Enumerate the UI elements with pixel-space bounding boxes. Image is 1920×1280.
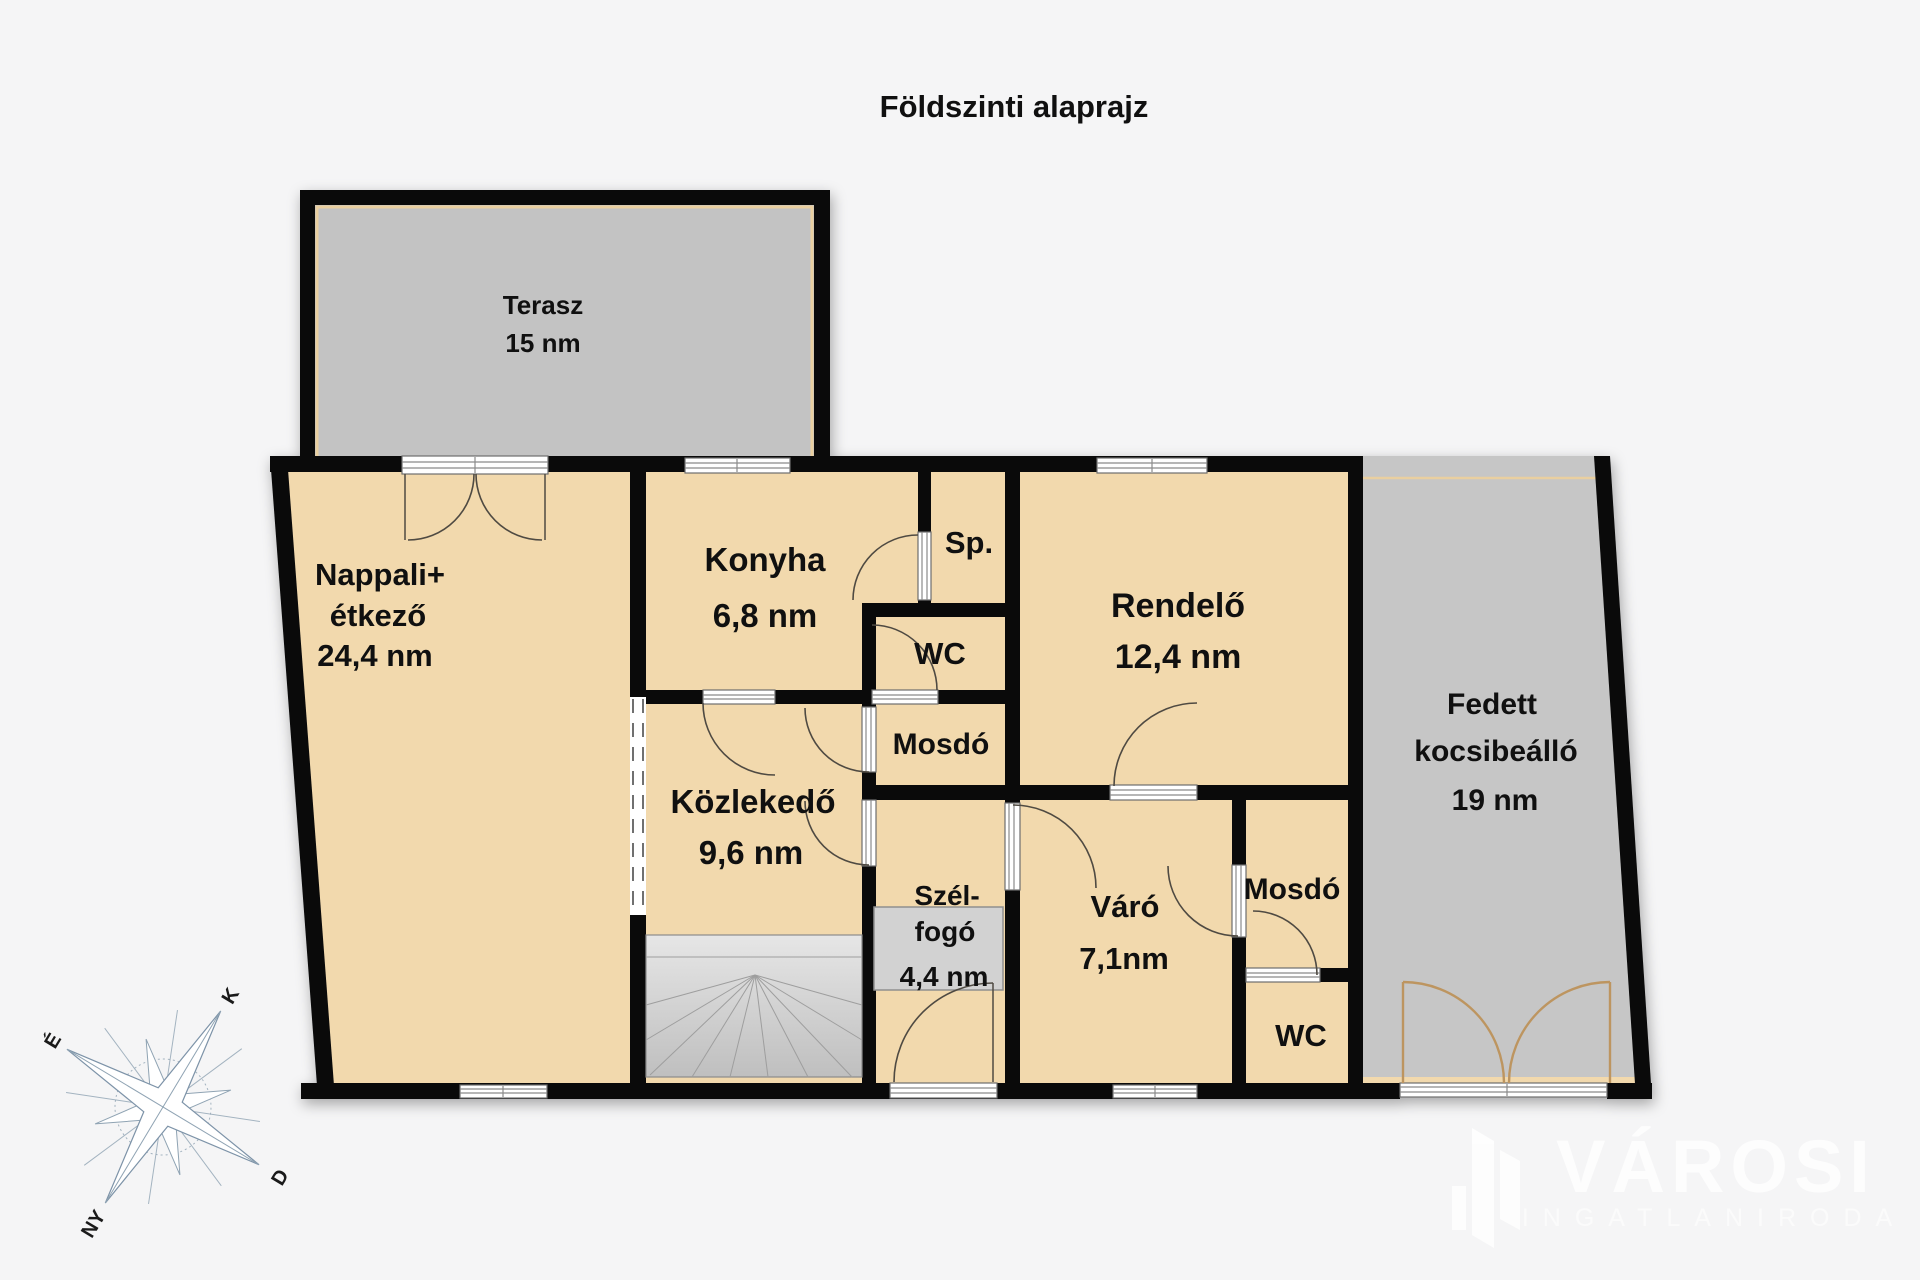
window-frame-nappali	[460, 1085, 547, 1098]
label-kocsibeallo-name1: Fedett	[1447, 688, 1537, 721]
label-rendelo-name: Rendelő	[1111, 587, 1245, 625]
label-terasz-name: Terasz	[503, 290, 583, 320]
open-passage	[630, 697, 646, 915]
label-nappali-area: 24,4 nm	[317, 638, 432, 673]
door-frame-spajz	[918, 532, 931, 600]
window-frame-rendelo	[1097, 458, 1207, 473]
staircase	[646, 935, 862, 1077]
door-frame-konyha	[703, 690, 775, 704]
label-kozlekedo-name: Közlekedő	[670, 783, 835, 820]
floor-plan-canvas: Földszinti alaprajz	[0, 0, 1920, 1280]
compass-label-west: NY	[77, 1206, 111, 1242]
door-frame-carport	[1400, 1083, 1607, 1097]
label-terasz-area: 15 nm	[505, 328, 580, 358]
compass-label-north: É	[40, 1029, 67, 1052]
compass-label-east: K	[218, 984, 245, 1008]
label-konyha-name: Konyha	[704, 541, 826, 578]
label-kocsibeallo-area: 19 nm	[1452, 784, 1539, 817]
label-szelfogo-area: 4,4 nm	[900, 961, 989, 992]
window-frame-konyha	[685, 458, 790, 473]
label-nappali-name1: Nappali+	[315, 557, 445, 592]
label-kozlekedo-area: 9,6 nm	[699, 834, 804, 871]
label-szelfogo-name2: fogó	[915, 916, 976, 947]
label-mosdo-right: Mosdó	[1244, 873, 1341, 906]
watermark-logo-icon	[1452, 1128, 1520, 1248]
door-frame-wc-central	[872, 690, 938, 704]
label-wc-right: WC	[1275, 1018, 1327, 1053]
watermark-subtitle: INGATLANIRODA	[1522, 1204, 1906, 1232]
label-nappali-name2: étkező	[330, 598, 426, 633]
compass-label-south: D	[267, 1166, 293, 1190]
door-frame-wc-right	[1246, 968, 1320, 982]
label-mosdo-central: Mosdó	[893, 728, 990, 761]
watermark: VÁROSI INGATLANIRODA	[1452, 1125, 1906, 1248]
door-frame-varo	[1005, 803, 1020, 890]
door-frame-entrance	[890, 1083, 997, 1098]
door-frame-szelfogo	[862, 800, 876, 866]
label-kocsibeallo-name2: kocsibeálló	[1414, 735, 1577, 768]
label-varo-name: Váró	[1091, 889, 1160, 924]
door-frame-rendelo	[1110, 785, 1197, 800]
page-title: Földszinti alaprajz	[880, 89, 1149, 124]
window-frame-varo	[1113, 1085, 1197, 1098]
window-frame-terasz-door	[402, 456, 548, 474]
label-szelfogo-name1: Szél-	[914, 880, 979, 911]
label-varo-area: 7,1nm	[1079, 941, 1169, 976]
watermark-brand: VÁROSI	[1556, 1125, 1876, 1208]
label-konyha-area: 6,8 nm	[713, 597, 818, 634]
label-spajz-name: Sp.	[945, 525, 993, 560]
floor-plan-page: Földszinti alaprajz	[0, 0, 1920, 1280]
label-rendelo-area: 12,4 nm	[1115, 638, 1242, 676]
door-frame-mosdo-central	[862, 707, 876, 772]
label-wc-central: WC	[914, 636, 966, 671]
